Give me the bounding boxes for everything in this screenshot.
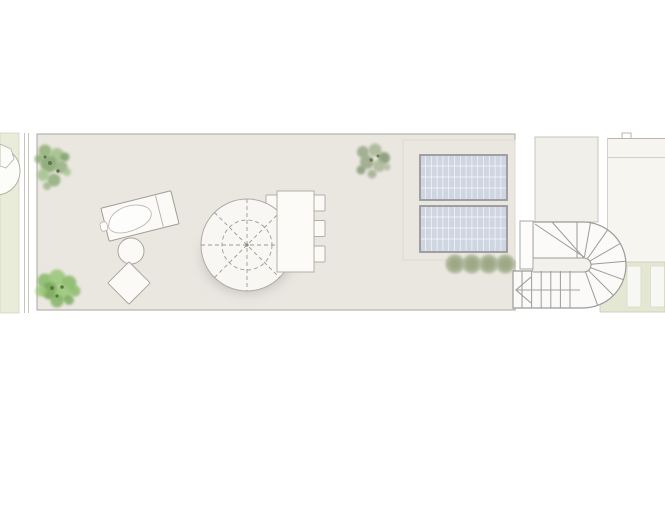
shrub-by-table-blob <box>384 164 391 171</box>
shrub-top-left-dot <box>48 161 52 165</box>
stair-well <box>533 258 591 272</box>
shrub-row-bush-core <box>499 258 511 270</box>
shrub-top-left-blob <box>43 182 51 190</box>
shrub-bottom-left-dot <box>60 285 64 289</box>
shrub-bottom-left-dot <box>50 286 54 290</box>
dining-chair-right <box>314 195 325 211</box>
solar-panel <box>420 155 507 200</box>
stair-wall <box>520 221 533 269</box>
shrub-top-left-dot <box>44 156 47 159</box>
dining-chair-right <box>314 221 325 237</box>
dining-table <box>277 191 314 272</box>
solar-panel <box>420 206 507 252</box>
shrub-by-table-blob <box>368 170 377 179</box>
shrub-top-left-blob <box>37 169 49 181</box>
planter-box <box>651 266 665 307</box>
shrub-top-left-blob <box>35 155 44 164</box>
floor-plan-canvas <box>0 0 665 532</box>
neighbor-right-chimney <box>622 133 631 138</box>
shrub-row-bush-core <box>466 258 478 270</box>
shrub-by-table-dot <box>377 155 380 158</box>
neighbor-top-right-roof <box>535 137 598 222</box>
planter-box <box>627 266 641 307</box>
shrub-top-left-dot <box>56 169 59 172</box>
shrub-by-table-blob <box>373 160 385 172</box>
shrub-row-bush-core <box>449 258 461 270</box>
shrub-bottom-left-dot <box>55 294 58 297</box>
shrub-top-left-blob <box>63 168 71 176</box>
shrub-bottom-left-blob <box>70 286 81 297</box>
plan-svg <box>0 0 665 532</box>
side-table <box>118 238 144 264</box>
shrub-bottom-left-blob <box>64 295 74 305</box>
parasol-pole-dot <box>245 243 248 246</box>
shrub-row-bush-core <box>483 258 495 270</box>
shrub-bottom-left-blob <box>36 286 47 297</box>
shrub-top-left-blob <box>61 153 70 162</box>
shrub-by-table-dot <box>369 158 373 162</box>
shrub-by-table-blob <box>357 166 366 175</box>
dining-chair-right <box>314 246 325 262</box>
